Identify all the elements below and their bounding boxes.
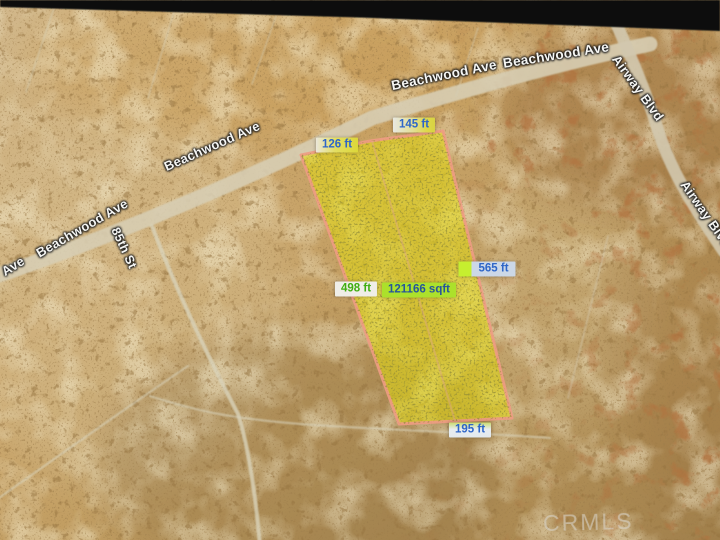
parcel-side-label-bottom: 195 ft <box>449 423 491 438</box>
crmls-watermark: CRMLS <box>543 508 634 537</box>
side-color-swatch <box>458 262 471 277</box>
parcel-side-label-left: 498 ft <box>335 282 377 297</box>
parcel-side-label-right: 565 ft <box>458 262 515 277</box>
parcel-side-label-top-right: 145 ft <box>393 118 435 133</box>
parcel-area-label: 121166 sqft <box>382 283 456 298</box>
satellite-map <box>0 0 720 540</box>
parcel-side-label-top-left: 126 ft <box>316 138 358 153</box>
aerial-photo: Ave Beachwood Ave Beachwood Ave Beachwoo… <box>0 0 720 540</box>
parcel-side-label-right-text: 565 ft <box>471 262 515 277</box>
